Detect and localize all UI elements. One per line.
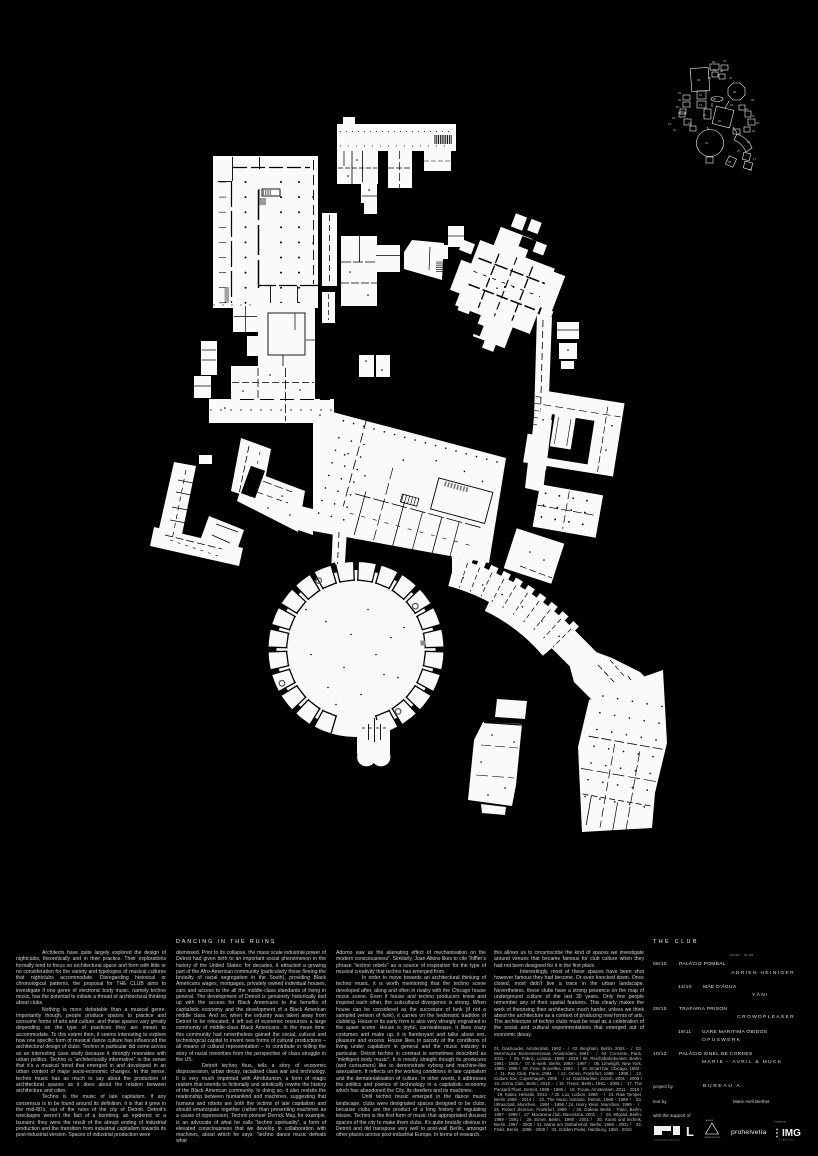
svg-text:22.: 22. (752, 129, 756, 133)
svg-text:11.: 11. (752, 114, 756, 118)
svg-text:12.: 12. (699, 103, 703, 107)
svg-text:26.: 26. (678, 98, 682, 102)
svg-text:17.: 17. (753, 157, 757, 161)
svg-text:14.: 14. (688, 121, 692, 125)
svg-text:CAMARA MUNICIPAL: CAMARA MUNICIPAL (704, 1136, 721, 1139)
svg-text:18.: 18. (712, 60, 716, 64)
svg-text:13.: 13. (668, 122, 672, 126)
svg-text:25.: 25. (676, 105, 680, 109)
svg-text:21.: 21. (673, 128, 677, 132)
svg-text:23.: 23. (672, 116, 676, 120)
svg-text:AGADA: AGADA (706, 1119, 714, 1122)
svg-text:01.: 01. (705, 141, 709, 145)
svg-text:10.: 10. (749, 168, 753, 172)
svg-text:30.: 30. (713, 97, 717, 101)
svg-text:02.: 02. (718, 119, 722, 123)
svg-text:15.: 15. (699, 93, 703, 97)
svg-text:03.: 03. (697, 78, 701, 82)
svg-text:29.: 29. (678, 91, 682, 95)
svg-text:prohelvetia: prohelvetia (731, 1129, 766, 1136)
svg-text:07.: 07. (703, 113, 707, 117)
svg-text:27.: 27. (737, 149, 741, 153)
svg-text:33.: 33. (751, 98, 755, 102)
svg-text:31.: 31. (713, 68, 717, 72)
svg-text:POWERED BY: POWERED BY (774, 1122, 787, 1124)
svg-text:24.: 24. (729, 76, 733, 80)
svg-text:09.: 09. (728, 160, 732, 164)
svg-text:16.: 16. (723, 59, 727, 63)
svg-text:L: L (686, 1124, 694, 1139)
svg-text:28.: 28. (720, 69, 724, 73)
svg-text:04.: 04. (730, 103, 734, 107)
svg-text:31.: 31. (745, 107, 749, 111)
svg-text:STANDING: STANDING (779, 1139, 795, 1142)
svg-text:05.: 05. (747, 140, 751, 144)
svg-text:Trienal de Arquitectura de Lis: Trienal de Arquitectura de Lisboa (654, 1139, 680, 1142)
svg-text:08.: 08. (708, 76, 712, 80)
svg-text:⋮IMG: ⋮IMG (772, 1128, 801, 1139)
svg-text:32.: 32. (756, 121, 760, 125)
svg-text:06.: 06. (733, 90, 737, 94)
